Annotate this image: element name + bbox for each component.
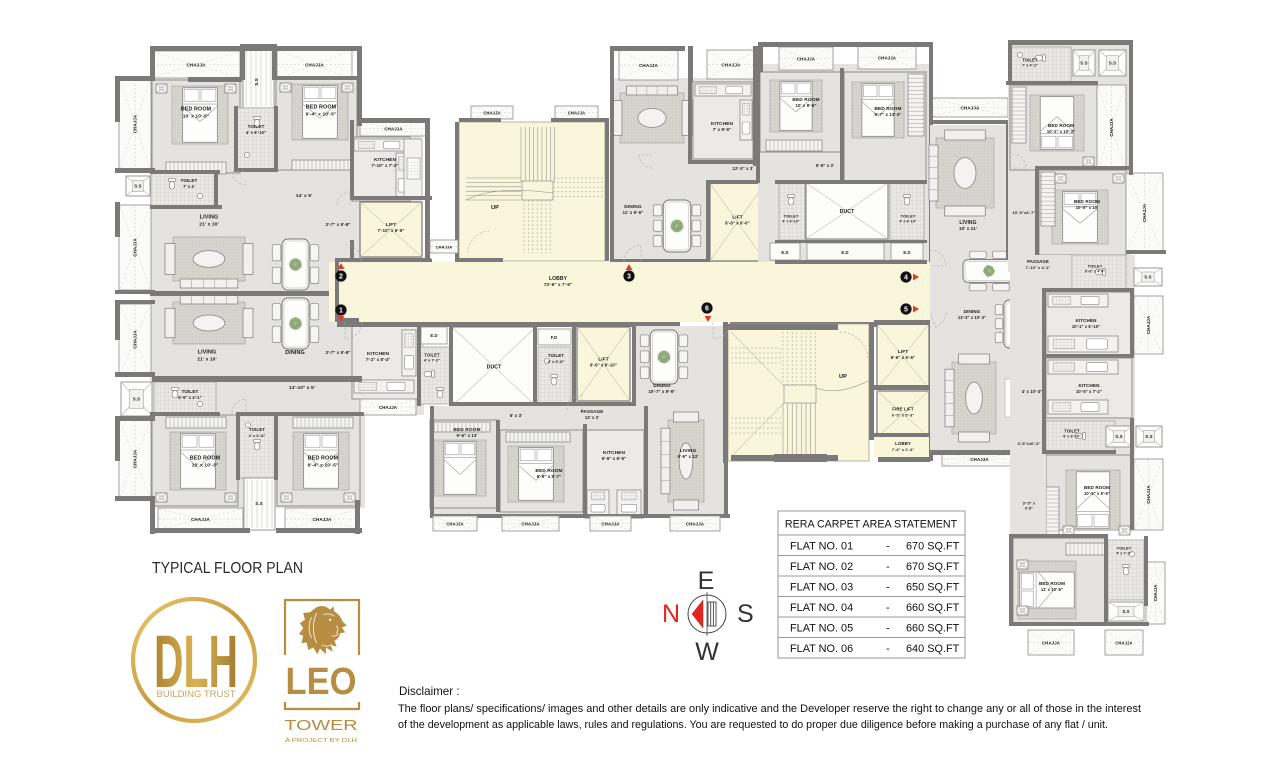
svg-text:CHAJJA: CHAJJA <box>384 126 403 131</box>
svg-text:640 SQ.FT: 640 SQ.FT <box>906 643 960 655</box>
svg-text:A PROJECT BY DLH: A PROJECT BY DLH <box>285 738 357 744</box>
svg-text:1: 1 <box>339 307 343 314</box>
svg-text:CHAJJA: CHAJJA <box>133 114 138 133</box>
svg-text:N: N <box>662 600 680 628</box>
svg-text:10'-5"x3'-7": 10'-5"x3'-7" <box>1013 210 1036 215</box>
svg-text:KITCHEN: KITCHEN <box>1078 383 1100 388</box>
svg-text:CHAJJA: CHAJJA <box>722 62 742 67</box>
svg-text:6'-8" x 6'-6": 6'-8" x 6'-6" <box>725 221 750 226</box>
svg-text:4' x 7'-2": 4' x 7'-2" <box>1116 552 1131 556</box>
svg-text:3'-7" x 5'-8": 3'-7" x 5'-8" <box>325 350 350 355</box>
svg-text:10'-5" x 9'-9": 10'-5" x 9'-9" <box>1084 491 1110 496</box>
svg-text:6'-8": 6'-8" <box>1025 507 1033 511</box>
svg-text:-: - <box>886 623 890 635</box>
svg-text:9'-4" x 10'-5": 9'-4" x 10'-5" <box>306 111 337 117</box>
svg-text:CHAJJA: CHAJJA <box>961 105 981 110</box>
svg-text:7' x 4': 7' x 4' <box>183 184 195 189</box>
svg-text:10'-7" x 9'-9": 10'-7" x 9'-9" <box>648 389 675 394</box>
svg-text:670 SQ.FT: 670 SQ.FT <box>906 541 960 553</box>
svg-text:4' x 6'-10": 4' x 6'-10" <box>899 220 917 224</box>
svg-text:BED ROOM: BED ROOM <box>308 456 339 462</box>
svg-text:7'-10" x 7'-2": 7'-10" x 7'-2" <box>371 163 398 168</box>
svg-text:TOILET: TOILET <box>1064 428 1080 433</box>
svg-text:CHAJJA: CHAJJA <box>483 110 500 115</box>
svg-text:13' x 3': 13' x 3' <box>585 415 599 420</box>
svg-text:10'-5" x 10': 10'-5" x 10' <box>1076 205 1098 210</box>
svg-text:6'-6" x 6'-10": 6'-6" x 6'-10" <box>590 363 617 368</box>
svg-text:9'-7" x 13'-3": 9'-7" x 13'-3" <box>874 112 901 117</box>
svg-text:4' x 6'-10": 4' x 6'-10" <box>1063 435 1081 439</box>
svg-text:The floor plans/ specification: The floor plans/ specifications/ images … <box>398 703 1142 715</box>
svg-text:E.D: E.D <box>841 250 848 255</box>
svg-text:LIVING: LIVING <box>959 220 976 226</box>
svg-text:10'-1" x 6'-10": 10'-1" x 6'-10" <box>1072 324 1100 329</box>
svg-text:BED ROOM: BED ROOM <box>1074 199 1100 204</box>
svg-text:10' x 9'-6": 10' x 9'-6" <box>796 103 817 108</box>
svg-text:TOILET: TOILET <box>784 213 799 218</box>
svg-text:BED ROOM: BED ROOM <box>190 456 221 462</box>
svg-text:FLAT NO. 01: FLAT NO. 01 <box>790 541 853 553</box>
svg-text:DUCT: DUCT <box>487 364 503 370</box>
svg-text:9'-9" x 12': 9'-9" x 12' <box>678 454 699 459</box>
svg-text:CHAJJA: CHAJJA <box>436 244 453 249</box>
svg-text:S.S: S.S <box>133 397 140 402</box>
svg-text:UP: UP <box>839 374 847 380</box>
svg-text:660 SQ.FT: 660 SQ.FT <box>906 602 960 614</box>
svg-text:FIRE LIFT: FIRE LIFT <box>892 407 914 412</box>
svg-text:CHAJJA: CHAJJA <box>970 457 989 462</box>
svg-text:4' x 6'-8": 4' x 6'-8" <box>249 433 266 438</box>
svg-text:CHAJJA: CHAJJA <box>1146 315 1151 334</box>
svg-text:TOILET: TOILET <box>548 353 564 358</box>
svg-text:Disclaimer :: Disclaimer : <box>399 685 460 698</box>
svg-text:CHAJJA: CHAJJA <box>797 56 816 61</box>
svg-text:BED ROOM: BED ROOM <box>181 107 212 113</box>
svg-text:7'-10" x 4'-1": 7'-10" x 4'-1" <box>1026 265 1051 270</box>
svg-text:9'-4" x 10'-5": 9'-4" x 10'-5" <box>308 462 339 468</box>
svg-text:S.S: S.S <box>255 501 262 506</box>
svg-text:6'-6" x 6'-6": 6'-6" x 6'-6" <box>891 355 916 360</box>
svg-text:TOILET: TOILET <box>249 427 265 432</box>
svg-text:FLAT NO. 02: FLAT NO. 02 <box>790 561 853 573</box>
svg-text:E.D: E.D <box>903 250 910 255</box>
svg-text:10' x 21': 10' x 21' <box>959 226 977 231</box>
svg-text:TOILET: TOILET <box>901 213 916 218</box>
svg-text:KITCHEN: KITCHEN <box>1075 318 1097 323</box>
svg-text:6'-6" x 8'-6": 6'-6" x 8'-6" <box>602 456 627 461</box>
svg-text:10'-1" x 10'-3": 10'-1" x 10'-3" <box>1047 129 1075 134</box>
svg-text:E.D: E.D <box>781 250 788 255</box>
svg-text:4' x 6'-10": 4' x 6'-10" <box>782 220 800 224</box>
svg-text:14' x 5': 14' x 5' <box>296 193 312 199</box>
svg-text:13'-10" x 5': 13'-10" x 5' <box>289 385 315 391</box>
svg-text:TOILET: TOILET <box>1117 545 1132 550</box>
svg-text:CHAJJA: CHAJJA <box>133 449 138 468</box>
svg-text:3'-7" x 5'-8": 3'-7" x 5'-8" <box>325 222 350 227</box>
svg-text:LOBBY: LOBBY <box>549 276 568 282</box>
svg-text:CHAJJA: CHAJJA <box>1153 585 1158 602</box>
svg-text:CHAJJA: CHAJJA <box>568 110 585 115</box>
svg-text:TOILET: TOILET <box>181 178 198 183</box>
svg-text:6'-8" x 3': 6'-8" x 3' <box>816 163 834 168</box>
svg-text:670 SQ.FT: 670 SQ.FT <box>906 561 960 573</box>
svg-text:5' x 3': 5' x 3' <box>510 413 523 418</box>
svg-text:TYPICAL FLOOR PLAN: TYPICAL FLOOR PLAN <box>152 560 303 577</box>
svg-text:CHAJJA: CHAJJA <box>1142 203 1147 222</box>
svg-text:TOILET: TOILET <box>1022 57 1038 62</box>
svg-text:9'-9" x 9'-7": 9'-9" x 9'-7" <box>537 474 562 479</box>
svg-text:2: 2 <box>339 273 343 280</box>
svg-text:BUILDING TRUST: BUILDING TRUST <box>157 689 237 699</box>
svg-text:E: E <box>698 567 715 595</box>
svg-text:7' x 4'-2": 7' x 4'-2" <box>1022 64 1038 68</box>
svg-text:-: - <box>886 602 890 614</box>
svg-text:21' x 10': 21' x 10' <box>197 356 217 362</box>
svg-text:TOILET: TOILET <box>1088 263 1103 268</box>
svg-text:CHAJJA: CHAJJA <box>521 521 540 526</box>
svg-text:CHAJJA: CHAJJA <box>133 330 138 349</box>
svg-text:S.S: S.S <box>1122 609 1129 614</box>
svg-text:PASSAGE: PASSAGE <box>1027 259 1049 264</box>
svg-text:3: 3 <box>627 273 631 280</box>
svg-text:BED ROOM: BED ROOM <box>306 105 337 111</box>
svg-text:LIVING: LIVING <box>198 350 217 356</box>
svg-text:4' x 10'-3": 4' x 10'-3" <box>1022 389 1042 394</box>
svg-text:CHAJJA: CHAJJA <box>313 517 333 522</box>
svg-text:11' x 9'-6": 11' x 9'-6" <box>623 210 644 215</box>
svg-text:10'-5" x 7'-2": 10'-5" x 7'-2" <box>1076 389 1102 394</box>
svg-text:S.S: S.S <box>1145 434 1152 439</box>
svg-text:11' x 10'-5": 11' x 10'-5" <box>1041 587 1063 592</box>
svg-text:6: 6 <box>705 305 709 312</box>
svg-text:CHAJJA: CHAJJA <box>187 62 207 67</box>
svg-text:BED ROOM: BED ROOM <box>1048 123 1074 128</box>
svg-text:LEO: LEO <box>286 661 357 703</box>
svg-text:CHAJJA: CHAJJA <box>601 521 620 526</box>
svg-text:4: 4 <box>904 274 908 281</box>
svg-text:FLAT NO. 06: FLAT NO. 06 <box>790 643 853 655</box>
svg-text:S.S: S.S <box>1080 61 1087 66</box>
svg-text:CHAJJA: CHAJJA <box>1042 640 1061 645</box>
svg-text:CHAJJA: CHAJJA <box>305 62 325 67</box>
svg-text:FLAT NO. 03: FLAT NO. 03 <box>790 582 853 594</box>
svg-text:-: - <box>886 561 890 573</box>
svg-text:13'-3" x 10'-3": 13'-3" x 10'-3" <box>958 315 986 320</box>
svg-text:PASSAGE: PASSAGE <box>581 409 604 414</box>
svg-text:4' x 6'-10": 4' x 6'-10" <box>246 130 266 135</box>
svg-text:DINING: DINING <box>964 309 981 314</box>
svg-text:BED ROOM: BED ROOM <box>1084 485 1110 490</box>
svg-text:S.S: S.S <box>1109 61 1116 66</box>
svg-text:LIVING: LIVING <box>200 215 219 221</box>
svg-text:4' x 7'-2": 4' x 7'-2" <box>424 359 440 363</box>
svg-text:CHAJJA: CHAJJA <box>379 405 398 410</box>
svg-text:660 SQ.FT: 660 SQ.FT <box>906 623 960 635</box>
svg-text:TOWER: TOWER <box>285 717 358 734</box>
svg-text:10' x 10'-5": 10' x 10'-5" <box>183 113 210 119</box>
svg-text:12'-3" x 3': 12'-3" x 3' <box>733 166 754 171</box>
svg-text:TOILET: TOILET <box>424 352 440 357</box>
svg-text:S.S: S.S <box>254 78 259 85</box>
svg-text:4' x 6'-8": 4' x 6'-8" <box>548 359 565 364</box>
svg-text:S.S: S.S <box>134 184 141 189</box>
svg-text:6'-5" x 5'-3": 6'-5" x 5'-3" <box>892 412 914 417</box>
svg-text:S: S <box>737 600 754 628</box>
svg-text:BED ROOM: BED ROOM <box>1039 581 1065 586</box>
svg-text:CHAJJA: CHAJJA <box>191 517 211 522</box>
svg-text:3'-5"x10'-3": 3'-5"x10'-3" <box>1018 441 1041 446</box>
svg-text:FLAT NO. 04: FLAT NO. 04 <box>790 602 853 614</box>
svg-text:UP: UP <box>491 205 499 211</box>
svg-text:6'-9" x 4'-4": 6'-9" x 4'-4" <box>1085 270 1106 274</box>
svg-text:9'-6" x 13': 9'-6" x 13' <box>457 433 478 438</box>
svg-text:CHAJJA: CHAJJA <box>1115 640 1132 645</box>
svg-text:5: 5 <box>904 306 908 313</box>
svg-text:CHAJJA: CHAJJA <box>1109 118 1114 137</box>
svg-text:-: - <box>886 643 890 655</box>
svg-text:E.D: E.D <box>430 333 437 338</box>
svg-text:of the development as applicab: of the development as applicable laws, r… <box>398 719 1108 731</box>
svg-text:CHAJJA: CHAJJA <box>878 55 897 60</box>
svg-text:7'-2" x 8'-4": 7'-2" x 8'-4" <box>366 357 391 362</box>
svg-text:650 SQ.FT: 650 SQ.FT <box>906 582 960 594</box>
svg-text:F.D: F.D <box>551 335 558 340</box>
svg-text:FLAT NO. 05: FLAT NO. 05 <box>790 623 853 635</box>
svg-text:-: - <box>886 541 890 553</box>
svg-text:CHAJJA: CHAJJA <box>446 521 463 526</box>
svg-text:CHAJJA: CHAJJA <box>686 521 705 526</box>
svg-text:73'-6" x 7'-6": 73'-6" x 7'-6" <box>544 282 572 287</box>
svg-text:CHAJJA: CHAJJA <box>1146 485 1151 504</box>
svg-text:TOILET: TOILET <box>182 389 199 394</box>
svg-text:DINING: DINING <box>285 350 304 356</box>
svg-text:CHAJJA: CHAJJA <box>133 238 138 257</box>
svg-text:7'-10" x 6'-6": 7'-10" x 6'-6" <box>377 228 404 233</box>
svg-text:S.S: S.S <box>1115 434 1122 439</box>
svg-text:-: - <box>886 582 890 594</box>
svg-text:7' x 8'-6": 7' x 8'-6" <box>713 127 731 132</box>
svg-text:LOBBY: LOBBY <box>895 441 911 446</box>
svg-text:RERA CARPET AREA STATEMENT: RERA CARPET AREA STATEMENT <box>785 519 958 531</box>
svg-text:TOILET: TOILET <box>248 124 265 129</box>
svg-text:S.S: S.S <box>1144 275 1151 280</box>
svg-text:3'-5" x: 3'-5" x <box>1023 500 1036 505</box>
svg-text:21' x 10': 21' x 10' <box>199 221 219 227</box>
svg-text:DUCT: DUCT <box>840 209 856 215</box>
svg-text:CHAJJA: CHAJJA <box>639 63 659 68</box>
svg-text:10' x 10'-3": 10' x 10'-3" <box>192 462 219 468</box>
svg-text:W: W <box>695 638 719 666</box>
svg-text:6'-9" x 4'-1": 6'-9" x 4'-1" <box>178 395 202 400</box>
svg-text:7'-6" x 2'-4": 7'-6" x 2'-4" <box>892 447 914 452</box>
